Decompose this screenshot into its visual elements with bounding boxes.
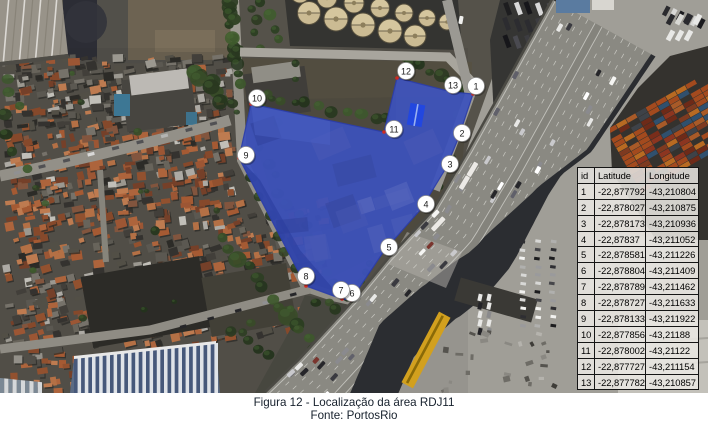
- svg-text:5: 5: [386, 242, 391, 252]
- svg-text:10: 10: [252, 93, 262, 103]
- svg-text:2: 2: [459, 128, 464, 138]
- svg-text:3: 3: [447, 159, 452, 169]
- svg-text:13: 13: [448, 80, 458, 90]
- svg-text:4: 4: [423, 199, 428, 209]
- svg-text:8: 8: [303, 271, 308, 281]
- svg-text:7: 7: [338, 285, 343, 295]
- svg-text:9: 9: [243, 150, 248, 160]
- svg-text:12: 12: [401, 66, 411, 76]
- svg-text:1: 1: [473, 81, 478, 91]
- svg-text:11: 11: [389, 124, 398, 134]
